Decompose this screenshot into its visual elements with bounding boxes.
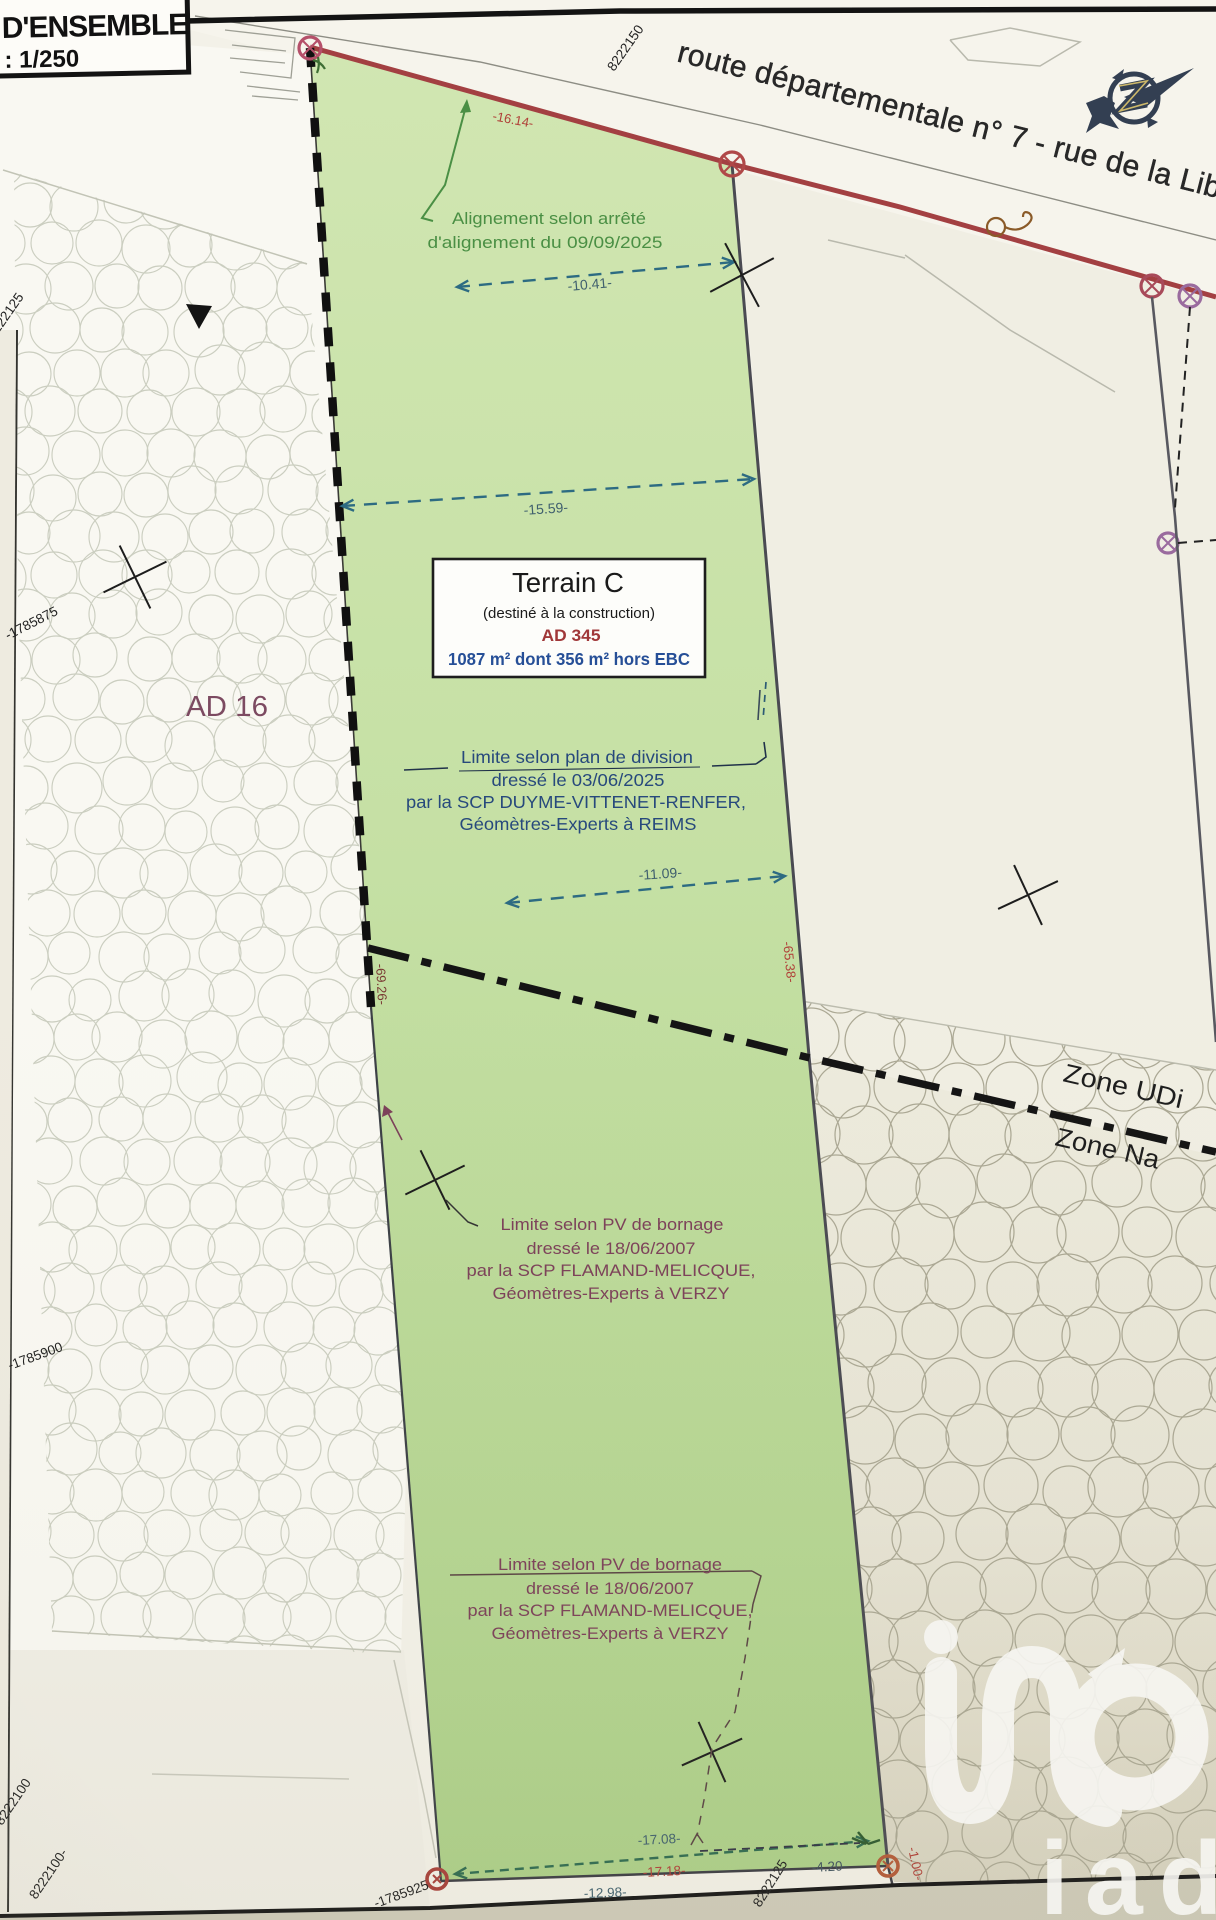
svg-text:iad: iad (1040, 1821, 1216, 1920)
